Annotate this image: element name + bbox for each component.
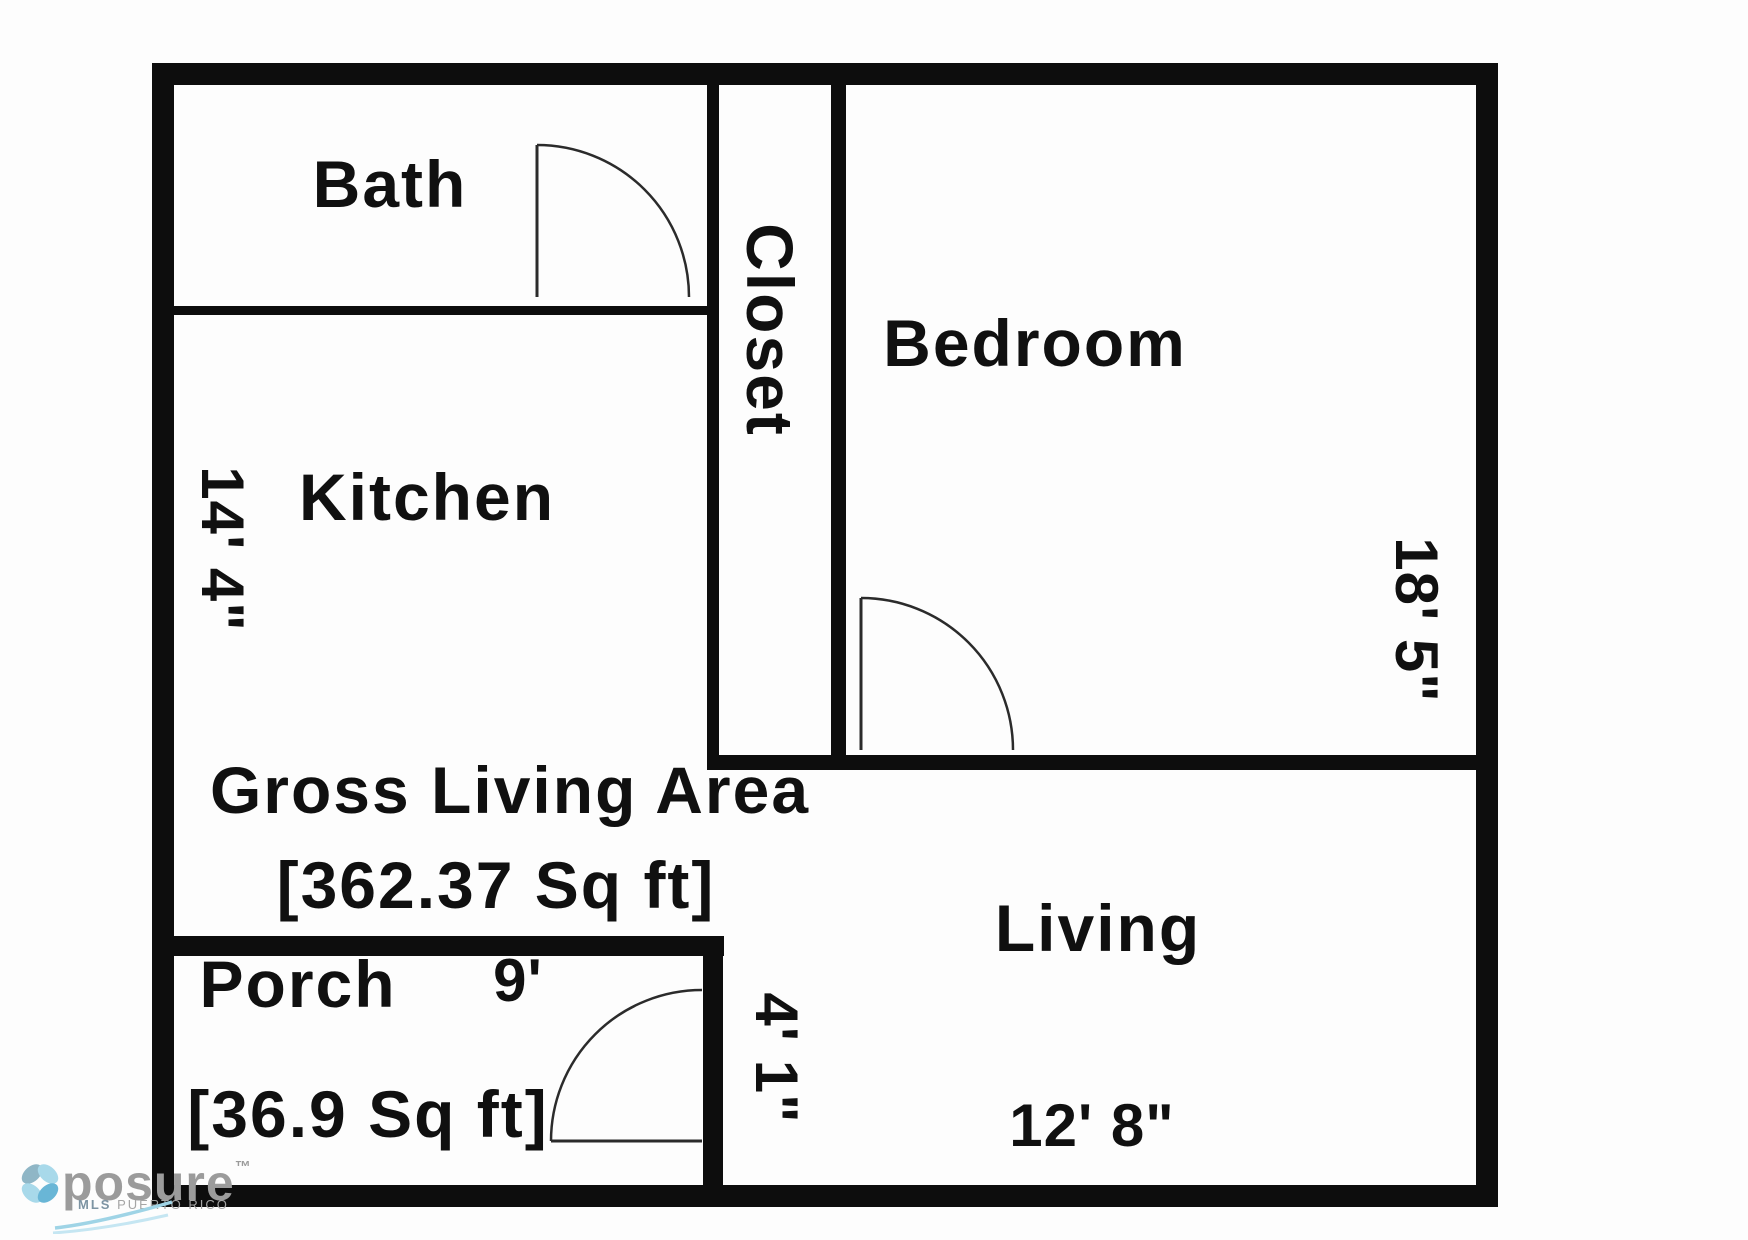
porch-width-dimension: 9' bbox=[493, 951, 543, 1011]
living-label: Living bbox=[995, 895, 1201, 961]
floor-plan-page: Bath Closet Bedroom Kitchen Living Porch… bbox=[0, 0, 1748, 1240]
bedroom-side-dimension: 18' 5" bbox=[1386, 537, 1446, 703]
porch-depth-dimension: 4' 1" bbox=[746, 992, 806, 1123]
kitchen-side-dimension: 14' 4" bbox=[192, 466, 252, 632]
closet-label: Closet bbox=[737, 223, 803, 437]
bedroom-bottom-wall bbox=[707, 755, 1476, 770]
swoosh-line-upper bbox=[55, 1202, 172, 1228]
gross-living-area-value: [362.37 Sq ft] bbox=[277, 852, 716, 918]
trademark-symbol: ™ bbox=[235, 1159, 251, 1176]
living-width-dimension: 12' 8" bbox=[1009, 1096, 1175, 1156]
closet-left-wall bbox=[707, 85, 719, 770]
flower-center bbox=[37, 1181, 43, 1187]
swoosh-lines bbox=[52, 1198, 177, 1234]
bath-label: Bath bbox=[313, 151, 468, 217]
kitchen-label: Kitchen bbox=[299, 464, 555, 530]
exterior-walls bbox=[152, 63, 1498, 1207]
bedroom-label: Bedroom bbox=[883, 310, 1187, 376]
porch-right-wall bbox=[703, 936, 723, 1185]
bedroom-left-wall bbox=[831, 85, 846, 770]
bath-bottom-wall bbox=[174, 306, 719, 315]
porch-area-value: [36.9 Sq ft] bbox=[187, 1081, 548, 1147]
porch-label: Porch bbox=[199, 951, 396, 1017]
gross-living-area-title: Gross Living Area bbox=[210, 757, 810, 823]
